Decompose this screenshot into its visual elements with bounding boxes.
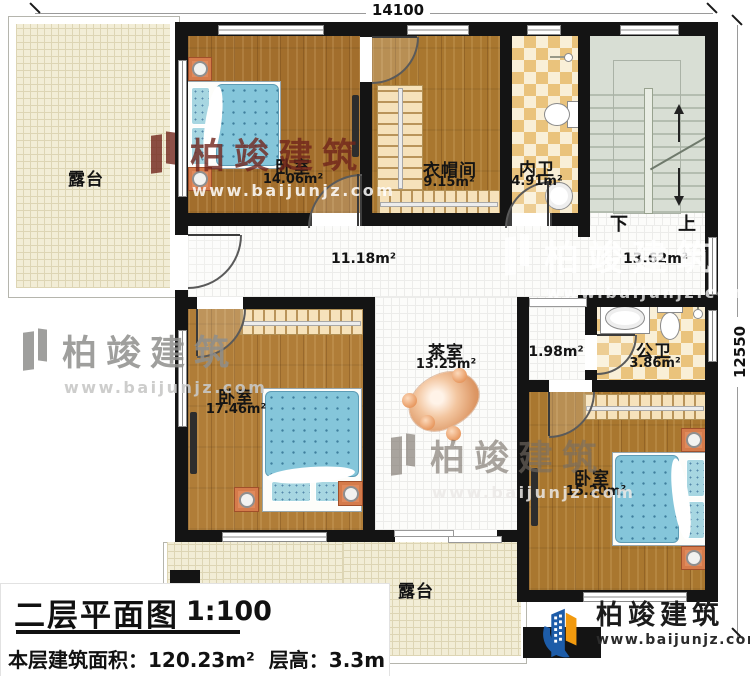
quilt [615,455,679,543]
floor-cushion [402,393,417,408]
stair-direction-arrow [678,168,680,198]
plan-info-line: 本层建筑面积：120.23m²层高：3.3m [8,644,399,673]
window [218,25,324,35]
door-leaf [188,234,240,236]
wall [578,295,718,307]
pillow [686,459,705,497]
plan-floor-height-text: 层高：3.3m [269,648,385,672]
tv-panel [531,468,538,526]
brand-logo-block: 柏竣建筑 www.baijunjz.com [532,601,750,665]
room-area-bedroom2: 17.46m² [204,402,268,417]
window [708,310,717,362]
wall [372,213,590,226]
window [620,25,679,35]
door-opening [585,335,597,370]
watermark-logo-icon [20,329,52,373]
wardrobe-rack [583,394,707,420]
tv-panel [352,95,359,157]
wall [363,297,375,542]
door-opening [360,37,372,82]
dimension-height: 12550 [731,317,749,387]
stair-direction-arrow [678,112,680,142]
window [527,25,561,35]
brand-name: 柏竣建筑 [596,601,750,631]
door-leaf [548,392,550,436]
dimension-tick [706,2,717,13]
wall [375,530,395,542]
floor-plan-page: 14100 12550 [0,0,750,676]
plan-title: 二层平面图 [14,590,179,635]
stair-handrail [644,88,653,214]
room-area-corridor: 11.18m² [331,251,389,267]
nightstand [681,546,706,570]
stair-arrowhead [674,104,684,114]
nightstand [188,167,212,191]
quilt [265,391,359,477]
plan-scale: 1:100 [186,596,272,627]
door-leaf [196,309,198,356]
nightstand [681,428,706,452]
toilet-bowl [544,103,570,126]
terrace-left-floor [16,24,170,288]
room-area-public-bath: 3.86m² [628,356,682,371]
nightstand [234,487,259,512]
wall [517,297,529,590]
door-opening [549,380,592,392]
title-underline [16,630,240,634]
room-name-terrace-left: 露台 [58,165,114,190]
dimension-tick [731,14,742,25]
room-area-bedroom1: 14.06m² [262,172,324,187]
room-area-hall: 13.62m² [623,251,681,267]
wash-basin [605,306,645,330]
room-name-terrace-bottom: 露台 [389,577,443,602]
nightstand [188,57,212,81]
door-opening [197,297,243,309]
window [178,330,187,427]
vestibule-floor [529,297,585,380]
sliding-door [448,536,502,543]
room-area-inner-bath: 4.91m² [509,174,565,189]
door-leaf [372,36,417,38]
window [708,237,717,295]
wardrobe-rack [240,309,364,335]
stair-arrowhead [674,196,684,206]
floor-drain [693,309,703,319]
floor-cushion [420,415,435,430]
vestibule-threshold [529,298,587,307]
brand-url: www.baijunjz.com [596,632,750,648]
room-area-bedroom3: 15.20m² [564,484,628,499]
pillow [271,481,311,502]
toilet-bowl [660,312,680,340]
stairs-down-label: 下 [607,210,631,236]
window [407,25,469,35]
window [178,60,187,197]
nightstand [338,481,363,506]
room-area-vestibule: 1.98m² [528,344,584,360]
floor-cushion [446,426,461,441]
tv-panel [190,412,197,474]
dimension-width: 14100 [366,1,430,19]
window [222,532,327,542]
wall [578,22,590,237]
towel-hook [564,53,573,62]
door-leaf [357,174,359,226]
door-opening [175,235,188,290]
room-area-tea-room: 13.25m² [415,357,477,372]
wall [517,380,718,392]
dimension-tick [29,2,40,13]
door-leaf [597,334,635,336]
sliding-door [394,530,454,537]
room-area-cloakroom: 9.15m² [418,175,480,190]
plan-area-text: 本层建筑面积：120.23m² [8,648,255,672]
brand-logo-icon [532,601,588,665]
stairs-up-label: 上 [675,210,699,236]
bed [612,452,708,546]
